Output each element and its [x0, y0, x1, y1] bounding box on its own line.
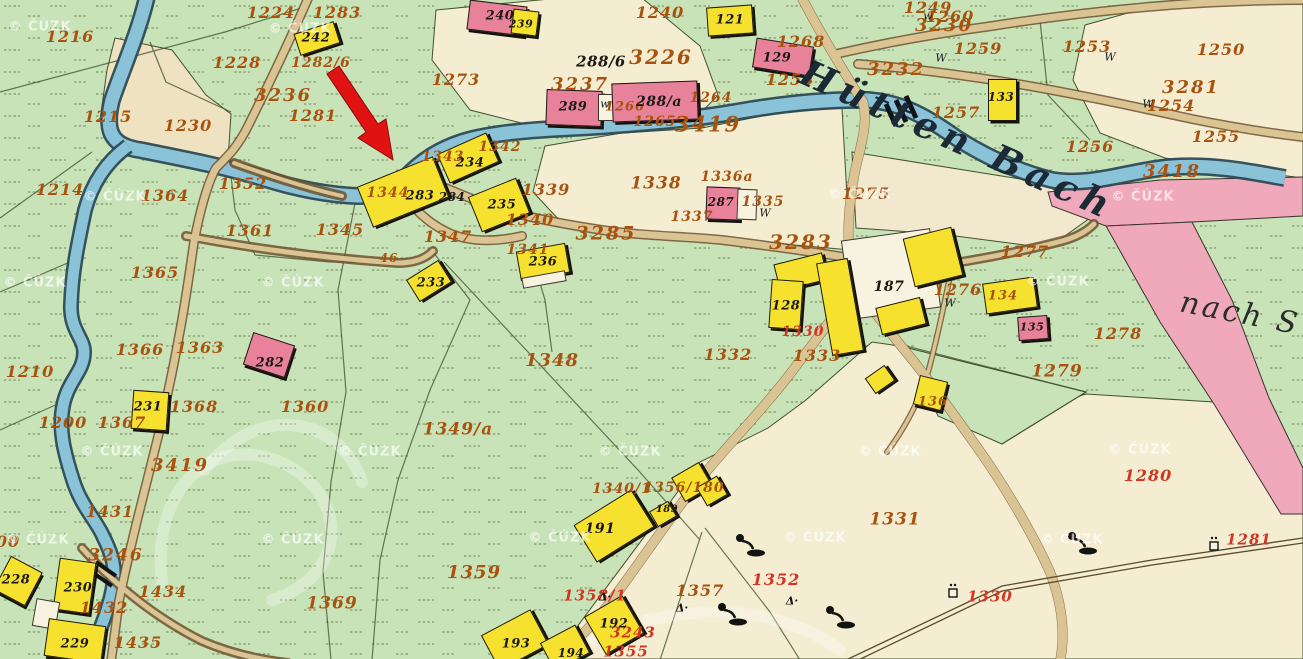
- terrain-graphic: [0, 0, 1303, 659]
- cadastral-map-viewport[interactable]: 12161224128312281282/6128112151230127312…: [0, 0, 1303, 659]
